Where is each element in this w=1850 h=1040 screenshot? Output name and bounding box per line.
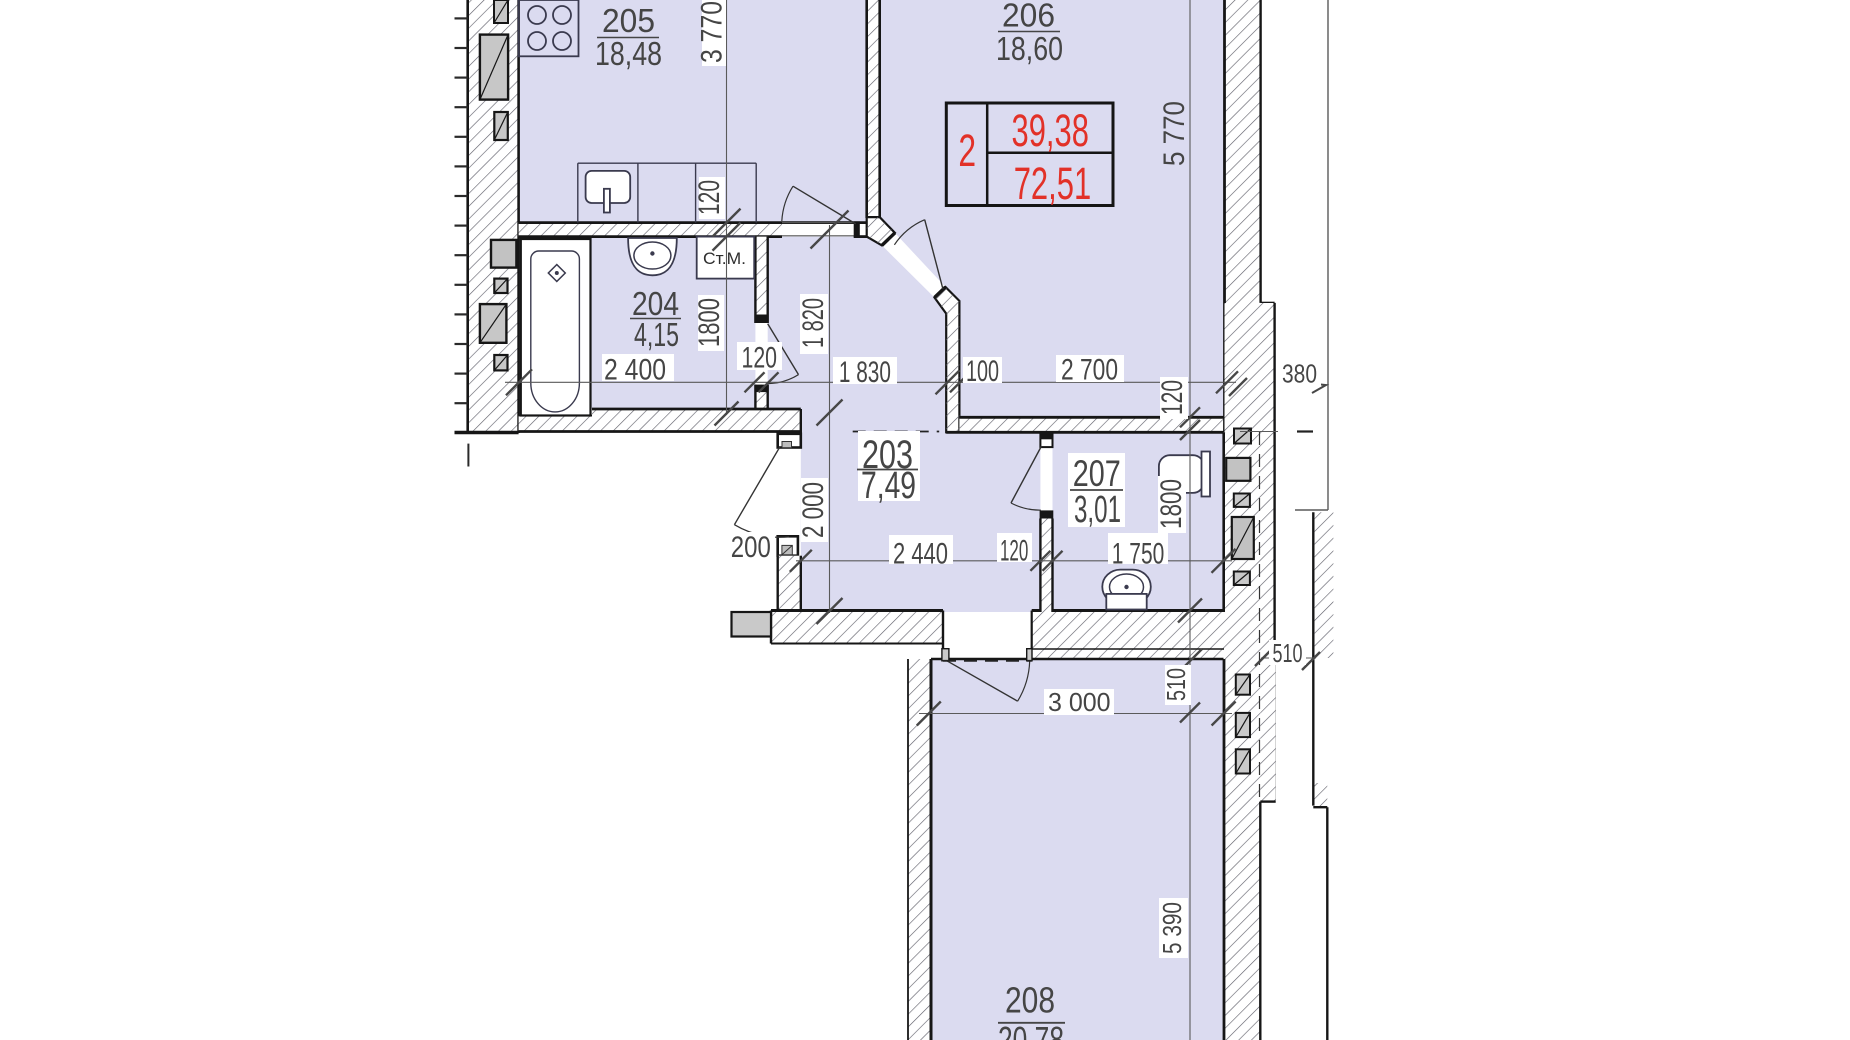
svg-text:7,49: 7,49: [861, 465, 916, 507]
svg-text:5 390: 5 390: [1157, 902, 1187, 954]
svg-text:120: 120: [742, 342, 778, 375]
svg-text:4,15: 4,15: [634, 316, 679, 353]
svg-text:100: 100: [966, 355, 999, 388]
svg-text:200: 200: [731, 531, 771, 564]
svg-text:207: 207: [1073, 453, 1121, 494]
svg-text:2 000: 2 000: [797, 482, 830, 538]
svg-text:206: 206: [1002, 0, 1055, 34]
svg-text:39,38: 39,38: [1012, 105, 1089, 156]
svg-text:2 400: 2 400: [604, 353, 666, 386]
svg-text:1 830: 1 830: [839, 356, 891, 389]
svg-text:1 750: 1 750: [1112, 538, 1165, 571]
svg-text:120: 120: [693, 180, 726, 215]
svg-text:18,48: 18,48: [595, 35, 662, 72]
svg-text:208: 208: [1005, 979, 1055, 1020]
svg-text:72,51: 72,51: [1014, 158, 1091, 209]
svg-text:205: 205: [602, 2, 655, 39]
svg-text:2 440: 2 440: [893, 538, 948, 571]
svg-text:1800: 1800: [1155, 479, 1188, 529]
svg-text:18,60: 18,60: [996, 30, 1063, 67]
svg-text:1800: 1800: [693, 298, 726, 347]
svg-text:3 000: 3 000: [1048, 687, 1111, 717]
svg-text:510: 510: [1161, 668, 1191, 701]
svg-text:120: 120: [1000, 535, 1028, 568]
svg-text:380: 380: [1282, 358, 1317, 388]
svg-text:20,78: 20,78: [998, 1019, 1064, 1040]
svg-text:120: 120: [1156, 380, 1189, 415]
svg-text:Ст.М.: Ст.М.: [703, 250, 746, 268]
svg-text:3,01: 3,01: [1074, 489, 1121, 531]
svg-text:2 700: 2 700: [1061, 354, 1118, 387]
svg-text:2: 2: [958, 125, 976, 176]
svg-text:3 770: 3 770: [695, 1, 728, 63]
svg-text:5 770: 5 770: [1158, 101, 1191, 166]
svg-text:1 820: 1 820: [797, 298, 830, 348]
svg-text:510: 510: [1273, 638, 1303, 668]
